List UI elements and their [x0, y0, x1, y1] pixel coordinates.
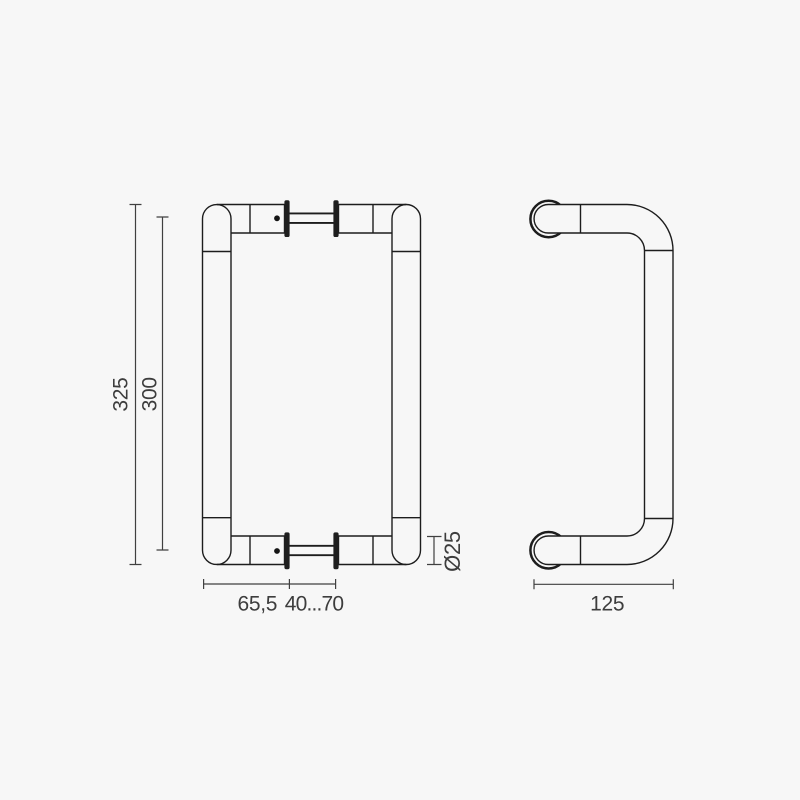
svg-text:40...70: 40...70: [285, 592, 344, 615]
svg-text:Ø25: Ø25: [440, 531, 465, 572]
svg-text:125: 125: [590, 592, 624, 615]
svg-text:325: 325: [109, 377, 132, 411]
svg-text:65,5: 65,5: [237, 592, 277, 615]
svg-text:300: 300: [139, 377, 162, 411]
